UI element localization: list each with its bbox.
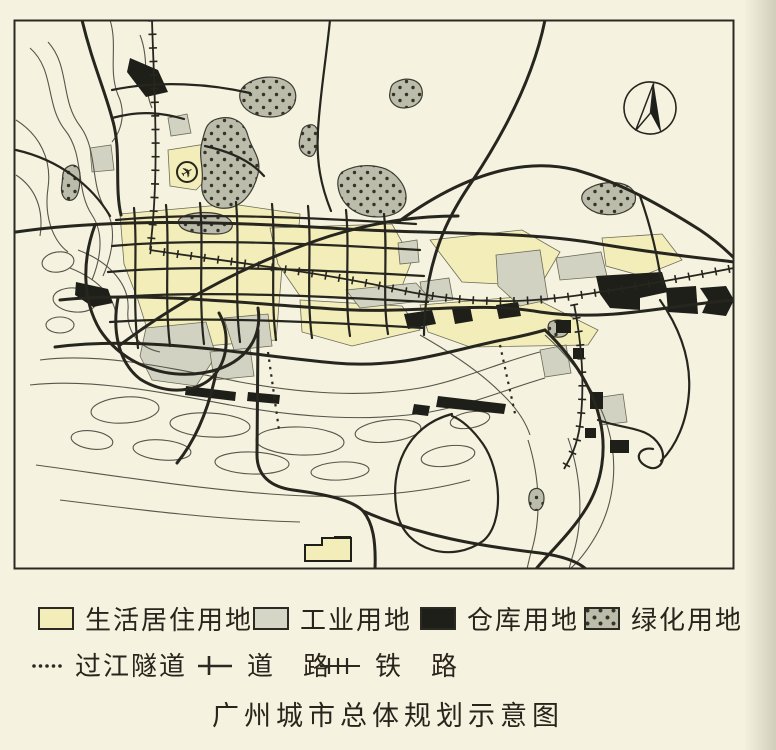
green-space-swatch <box>584 607 620 630</box>
railway-line-icon <box>318 652 364 678</box>
legend-label-railway: 铁 路 <box>375 646 459 683</box>
legend-label-warehouse: 仓库用地 <box>467 600 579 637</box>
legend-item-industrial: 工业用地 <box>253 600 412 637</box>
airport-icon: ✈ <box>177 162 197 183</box>
legend-item-warehouse: 仓库用地 <box>420 600 579 637</box>
industrial-swatch <box>253 607 289 630</box>
legend-label-tunnel: 过江隧道 <box>75 646 187 683</box>
legend-label-residential: 生活居住用地 <box>85 600 253 637</box>
legend-label-green-space: 绿化用地 <box>631 600 743 637</box>
legend-item-residential: 生活居住用地 <box>38 600 253 637</box>
dotted-line-icon <box>30 652 64 678</box>
tunnels-layer <box>268 345 516 430</box>
outlined-block <box>305 538 351 561</box>
city-map: ✈ <box>0 0 776 592</box>
legend-item-road: 道 路 <box>196 646 331 683</box>
warehouse-swatch <box>420 607 456 630</box>
legend-item-railway: 铁 路 <box>318 646 459 683</box>
north-arrow-icon <box>621 79 678 136</box>
residential-swatch <box>38 607 74 630</box>
legend-item-tunnel: 过江隧道 <box>30 646 187 683</box>
road-line-icon <box>196 652 236 678</box>
legend-item-green-space: 绿化用地 <box>584 600 743 637</box>
legend-label-industrial: 工业用地 <box>300 600 412 637</box>
page-title: 广州城市总体规划示意图 <box>0 694 776 733</box>
